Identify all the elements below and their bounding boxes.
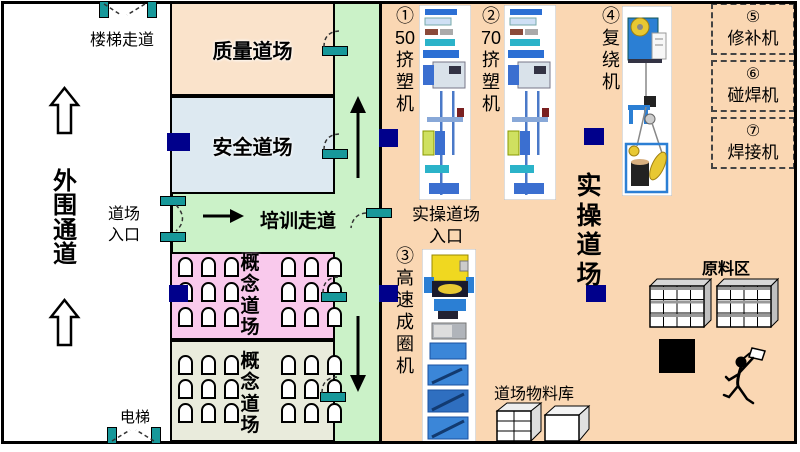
extruder-70-label: ②70挤塑机 [479,6,503,116]
high-speed-coiler-label: ③高速成圈机 [393,246,417,378]
raw-material-shelf [713,276,779,328]
position-marker [584,128,604,145]
seat-arch [224,355,239,375]
position-marker [169,285,188,302]
practical-dojo-entrance-door [366,208,392,218]
practical-entrance-line1: 实操道场 [398,204,494,226]
dojo-entrance-door-upper [160,196,186,206]
seat-arch [327,403,342,423]
seat-arch [304,282,319,302]
stair-door-left [99,1,109,18]
green-corridor-strip [335,2,379,442]
black-pallet-marker [659,339,695,373]
seat-arch [224,282,239,302]
position-marker [379,129,398,147]
extruder-70-machine-image [504,5,556,200]
seat-arch [201,257,216,277]
dojo-entrance-door-lower [160,232,186,242]
material-store-box [543,403,591,443]
seat-arch [304,403,319,423]
rewinder-label: ④复绕机 [599,6,623,94]
welder-number: ⑦ [746,122,760,143]
dojo-entrance-label: 道场入口 [105,205,143,247]
room-safety-dojo: 安全道场 [170,96,335,194]
seat-arch [201,355,216,375]
seat-arch [201,379,216,399]
raw-material-label: 原料区 [702,255,750,279]
seat-arch [304,257,319,277]
welder-name: 焊接机 [728,142,779,164]
outer-corridor-label: 外围通道 [51,170,79,268]
seat-arch [327,355,342,375]
position-marker [167,133,190,151]
repair-machine-number: ⑤ [746,8,760,29]
seat-arch [304,307,319,327]
seat-arch [327,307,342,327]
elevator-label: 电梯 [120,406,150,427]
spot-welder-box: ⑥ 碰焊机 [711,60,795,112]
stair-door-right [147,1,157,18]
seat-arch [304,355,319,375]
coiler-machine-image [422,249,476,442]
seat-arch [178,307,193,327]
repair-machine-name: 修补机 [728,28,779,50]
quality-dojo-label: 质量道场 [172,4,333,94]
material-store-crates [494,401,544,443]
concept-lower-door [320,392,346,402]
rewinder-machine-image [622,6,672,196]
safety-dojo-label: 安全道场 [172,98,333,192]
seat-arch [178,355,193,375]
raw-material-shelf [646,276,712,328]
spot-welder-number: ⑥ [746,65,760,86]
seat-arch [281,282,296,302]
quality-dojo-door [322,46,348,56]
room-quality-dojo: 质量道场 [170,2,335,96]
extruder-50-label: ①50挤塑机 [393,6,417,116]
seat-arch [178,257,193,277]
practical-entrance-line2: 入口 [398,226,494,248]
seat-arch [178,403,193,423]
outer-corridor-up-arrow-bottom [51,300,78,345]
material-store-label: 道场物料库 [494,380,574,404]
seat-arch [201,403,216,423]
concept-upper-door [321,292,347,302]
concept-dojo-upper-label: 概念道场 [239,253,261,338]
elevator-door-left [107,427,117,444]
seat-arch [201,282,216,302]
seat-arch [224,257,239,277]
seat-arch [281,257,296,277]
seat-arch [224,379,239,399]
stair-walkway-label: 楼梯走道 [90,26,154,50]
seat-arch [327,257,342,277]
practical-entrance-label: 实操道场 入口 [398,204,494,248]
seat-arch [178,379,193,399]
elevator-door-swing [112,430,154,441]
seat-arch [201,307,216,327]
seat-arch [224,307,239,327]
seat-arch [224,403,239,423]
elevator-door-right [151,427,161,444]
seat-arch [304,379,319,399]
seat-arch [281,307,296,327]
seat-arch [281,403,296,423]
practical-dojo-label: 实操道场 [574,172,604,290]
training-walkway-label: 培训走道 [260,206,336,233]
extruder-50-machine-image [419,5,471,200]
safety-dojo-door [322,149,348,159]
person-figure [722,346,766,410]
outer-corridor-up-arrow-top [51,88,78,133]
spot-welder-name: 碰焊机 [728,85,779,107]
welder-box: ⑦ 焊接机 [711,117,795,169]
stair-door-swing [104,4,145,15]
seat-arch [281,379,296,399]
repair-machine-box: ⑤ 修补机 [711,3,795,55]
concept-dojo-lower-label: 概念道场 [239,351,261,436]
dojo-floorplan: 质量道场 安全道场 概念道场 概念道场 楼梯走道 外围通道 [0,0,800,452]
seat-arch [281,355,296,375]
